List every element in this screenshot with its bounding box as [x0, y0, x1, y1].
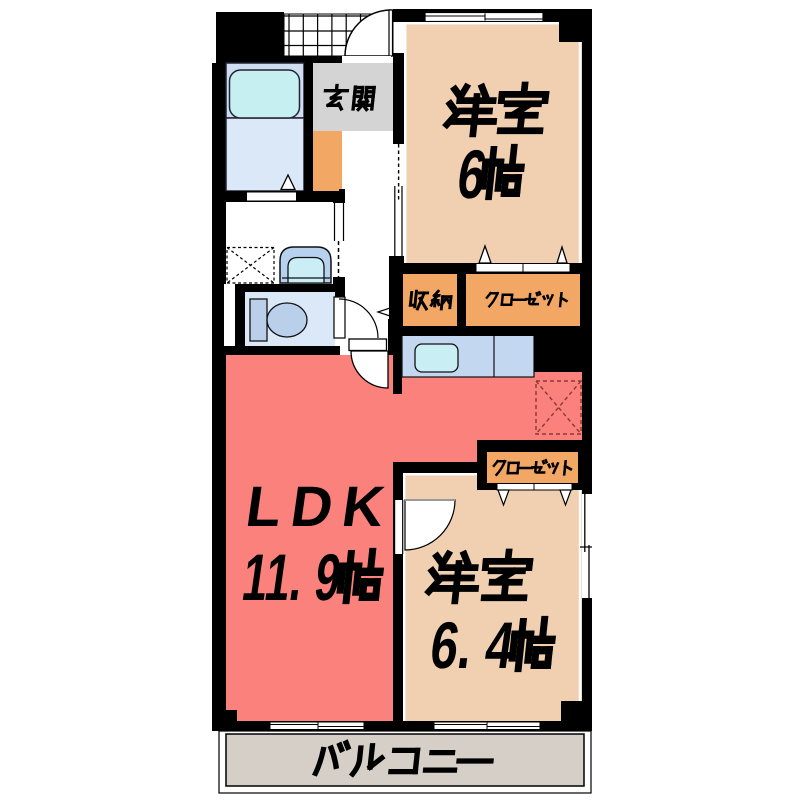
- svg-text:6. 4: 6. 4: [426, 610, 519, 683]
- svg-text:LDK: LDK: [242, 475, 398, 539]
- svg-text:11. 9: 11. 9: [238, 542, 346, 615]
